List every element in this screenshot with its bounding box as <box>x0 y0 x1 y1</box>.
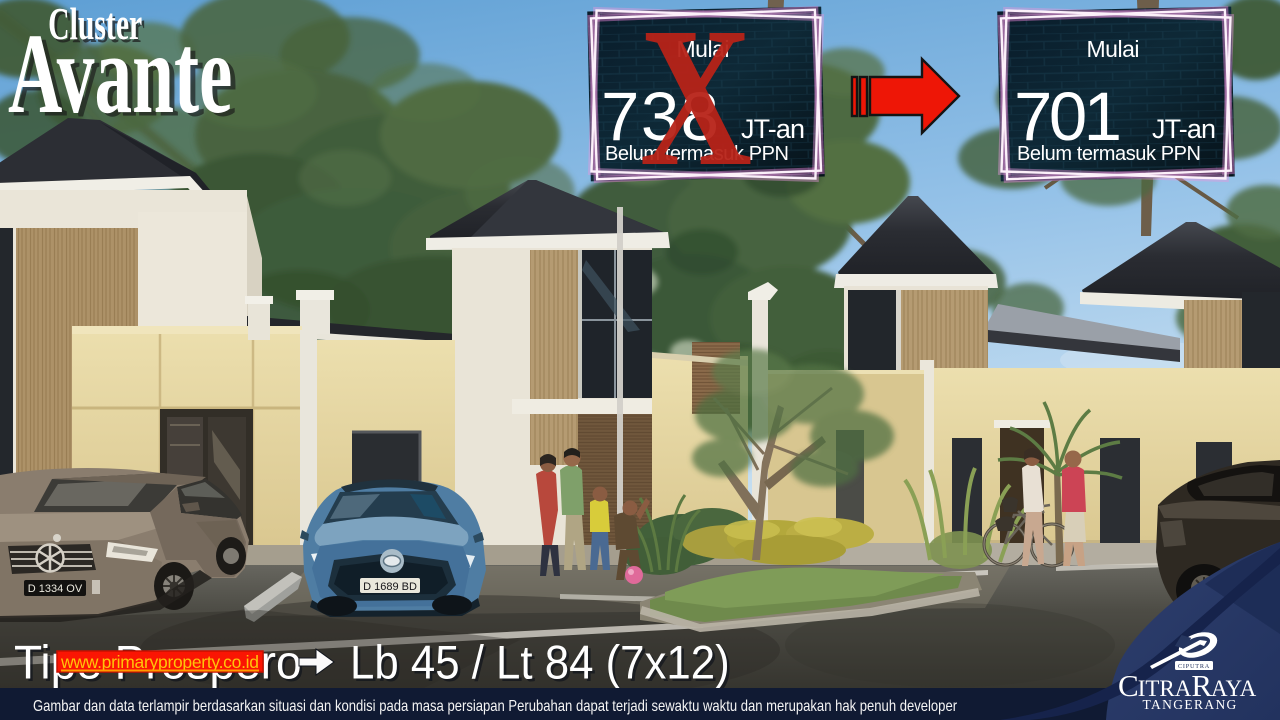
svg-text:Mulai: Mulai <box>1087 36 1140 62</box>
svg-text:Gambar dan data terlampir berd: Gambar dan data terlampir berdasarkan si… <box>33 698 957 716</box>
svg-text:Avante: Avante <box>8 10 232 138</box>
svg-text:D 1689 BD: D 1689 BD <box>363 581 417 593</box>
svg-text:D 1334 OV: D 1334 OV <box>28 583 83 595</box>
svg-text:Belum termasuk PPN: Belum termasuk PPN <box>1017 143 1201 165</box>
svg-text:JT-an: JT-an <box>1152 114 1216 144</box>
svg-text:X: X <box>640 0 753 207</box>
svg-text:Lb 45 / Lt 84 (7x12): Lb 45 / Lt 84 (7x12) <box>350 636 730 689</box>
svg-text:www.primaryproperty.co.id: www.primaryproperty.co.id <box>60 652 259 672</box>
svg-text:TANGERANG: TANGERANG <box>1143 697 1238 712</box>
